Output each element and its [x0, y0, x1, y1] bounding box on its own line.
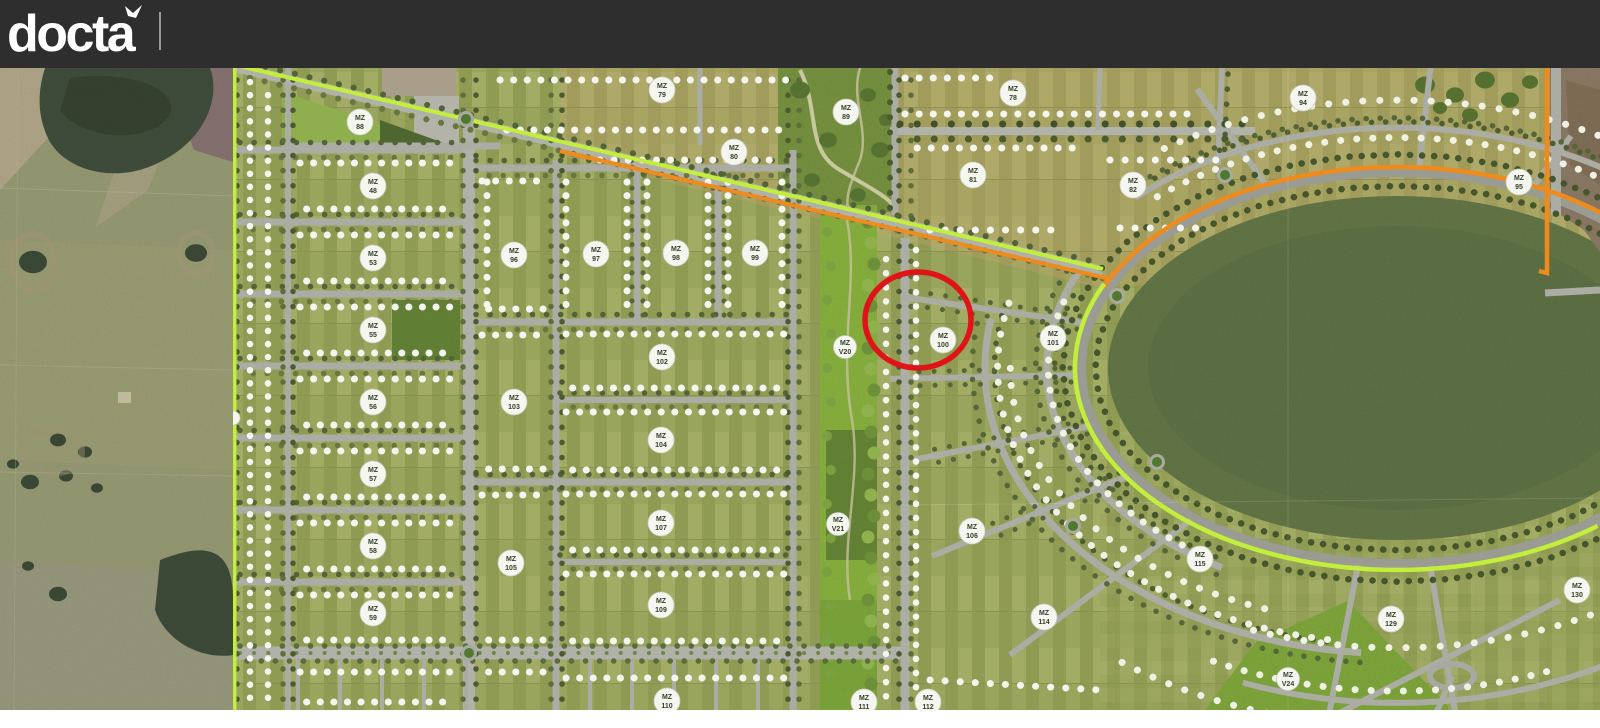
- svg-text:MZ: MZ: [368, 179, 379, 186]
- svg-text:MZ: MZ: [662, 694, 673, 701]
- svg-text:59: 59: [369, 615, 377, 622]
- svg-text:110: 110: [661, 703, 672, 710]
- svg-text:V21: V21: [832, 526, 845, 533]
- svg-text:MZ: MZ: [1048, 331, 1059, 338]
- svg-text:MZ: MZ: [368, 323, 379, 330]
- svg-text:94: 94: [1299, 100, 1307, 107]
- svg-text:98: 98: [672, 255, 680, 262]
- svg-text:MZ: MZ: [509, 395, 520, 402]
- svg-text:107: 107: [655, 525, 667, 532]
- svg-text:112: 112: [922, 704, 933, 711]
- svg-text:MZ: MZ: [656, 598, 667, 605]
- svg-text:102: 102: [656, 359, 668, 366]
- svg-text:105: 105: [505, 565, 517, 572]
- svg-text:81: 81: [969, 177, 977, 184]
- svg-text:111: 111: [859, 704, 870, 711]
- svg-text:48: 48: [369, 188, 377, 195]
- svg-text:80: 80: [730, 154, 738, 161]
- svg-text:MZ: MZ: [368, 395, 379, 402]
- svg-text:MZ: MZ: [1514, 175, 1525, 182]
- svg-text:106: 106: [966, 533, 978, 540]
- svg-text:58: 58: [369, 548, 377, 555]
- svg-text:103: 103: [508, 404, 520, 411]
- svg-text:MZ: MZ: [657, 350, 668, 357]
- svg-text:MZ: MZ: [1008, 86, 1019, 93]
- svg-text:MZ: MZ: [729, 145, 740, 152]
- svg-text:MZ: MZ: [1298, 91, 1309, 98]
- svg-text:101: 101: [1047, 340, 1059, 347]
- svg-text:MZ: MZ: [656, 516, 667, 523]
- svg-text:95: 95: [1515, 184, 1523, 191]
- svg-text:109: 109: [655, 607, 667, 614]
- svg-text:MZ: MZ: [1386, 612, 1397, 619]
- svg-text:89: 89: [842, 114, 850, 121]
- svg-text:57: 57: [369, 476, 377, 483]
- svg-text:96: 96: [510, 257, 518, 264]
- svg-text:MZ: MZ: [1128, 178, 1139, 185]
- svg-text:MZ: MZ: [938, 333, 949, 340]
- svg-text:79: 79: [658, 92, 666, 99]
- svg-text:53: 53: [369, 260, 377, 267]
- svg-text:MZ: MZ: [671, 246, 682, 253]
- svg-text:MZ: MZ: [1195, 552, 1206, 559]
- svg-text:MZ: MZ: [968, 168, 979, 175]
- svg-text:MZ: MZ: [1572, 583, 1583, 590]
- svg-text:82: 82: [1129, 187, 1137, 194]
- svg-text:MZ: MZ: [506, 556, 517, 563]
- svg-text:MZ: MZ: [967, 524, 978, 531]
- svg-text:MZ: MZ: [509, 248, 520, 255]
- svg-text:MZ: MZ: [1039, 610, 1050, 617]
- svg-text:100: 100: [937, 342, 949, 349]
- svg-text:MZ: MZ: [368, 539, 379, 546]
- svg-text:55: 55: [369, 332, 377, 339]
- svg-text:MZ: MZ: [840, 340, 851, 347]
- svg-text:MZ: MZ: [368, 467, 379, 474]
- svg-text:MZ: MZ: [368, 606, 379, 613]
- svg-text:99: 99: [751, 255, 759, 262]
- svg-text:78: 78: [1009, 95, 1017, 102]
- svg-text:115: 115: [1194, 561, 1205, 568]
- svg-text:MZ: MZ: [833, 517, 844, 524]
- svg-text:docta: docta: [7, 5, 137, 63]
- svg-text:MZ: MZ: [750, 246, 761, 253]
- svg-text:104: 104: [655, 442, 667, 449]
- svg-text:MZ: MZ: [591, 247, 602, 254]
- svg-text:V20: V20: [839, 349, 852, 356]
- svg-text:MZ: MZ: [368, 251, 379, 258]
- svg-text:MZ: MZ: [657, 83, 668, 90]
- svg-text:MZ: MZ: [355, 115, 366, 122]
- svg-text:56: 56: [369, 404, 377, 411]
- svg-text:88: 88: [356, 124, 364, 131]
- svg-text:MZ: MZ: [923, 695, 934, 702]
- svg-text:97: 97: [592, 256, 600, 263]
- svg-text:MZ: MZ: [859, 695, 870, 702]
- svg-text:129: 129: [1385, 621, 1397, 628]
- svg-text:130: 130: [1571, 592, 1583, 599]
- svg-text:MZ: MZ: [656, 433, 667, 440]
- svg-text:114: 114: [1038, 619, 1049, 626]
- svg-text:MZ: MZ: [841, 105, 852, 112]
